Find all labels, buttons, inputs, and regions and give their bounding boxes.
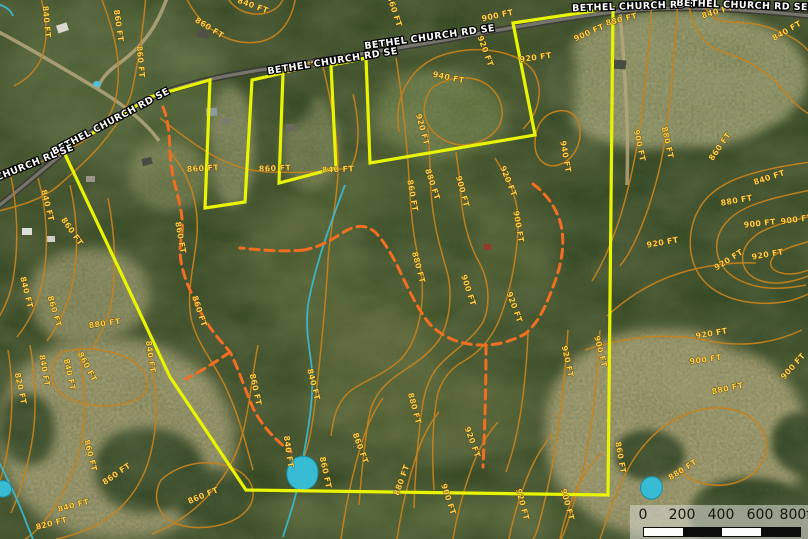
contour-elevation-label: 840 FT bbox=[37, 354, 51, 388]
scale-tick-label: 200 bbox=[669, 507, 696, 523]
contour-elevation-label: 920 FT bbox=[505, 290, 525, 324]
trail-path bbox=[240, 248, 304, 251]
contour-elevation-label: 900 FT bbox=[632, 129, 648, 163]
scale-bar-segment bbox=[722, 528, 761, 536]
contour-elevation-label: 900 FT bbox=[454, 175, 471, 209]
contour-elevation-label: 900 FT bbox=[689, 353, 722, 366]
contour-elevation-label: 900 FT bbox=[481, 8, 515, 24]
building bbox=[56, 22, 69, 33]
scale-tick-labels: 0200400600800ft bbox=[630, 507, 808, 523]
contour-elevation-label: 840 FT bbox=[305, 368, 322, 402]
aerial-topo-map[interactable]: 840 FT860 FT860 FT860 FT840 FT860 FT860 … bbox=[0, 0, 808, 539]
contour-elevation-label: 920 FT bbox=[498, 164, 519, 197]
contour-elevation-label: 840 FT bbox=[57, 497, 91, 514]
contour-elevation-label: 920 FT bbox=[751, 247, 785, 261]
building bbox=[222, 118, 230, 124]
scale-bar-segment bbox=[683, 528, 722, 536]
contour-elevation-label: 880 FT bbox=[410, 251, 427, 285]
contour-elevation-label: 900 FT bbox=[592, 335, 609, 369]
contour-labels-layer: 840 FT860 FT860 FT860 FT840 FT860 FT860 … bbox=[13, 0, 808, 532]
contour-elevation-label: 920 FT bbox=[646, 235, 680, 249]
contour-elevation-label: 860 FT bbox=[82, 439, 99, 473]
trail-path bbox=[163, 107, 291, 452]
map-overlay: 840 FT860 FT860 FT860 FT840 FT860 FT860 … bbox=[0, 0, 808, 539]
pond bbox=[641, 477, 663, 500]
contour-elevation-label: 940 FT bbox=[558, 140, 572, 174]
dirt-roads bbox=[0, 0, 627, 185]
contour-elevation-label: 860 FT bbox=[46, 295, 64, 329]
contour-elevation-label: 820 FT bbox=[35, 515, 69, 532]
scale-tick-label: 400 bbox=[708, 507, 735, 523]
dirt-road bbox=[98, 0, 168, 88]
contour-elevation-label: 920 FT bbox=[463, 425, 483, 459]
contour-elevation-label: 920 FT bbox=[519, 51, 552, 64]
contour-elevation-label: 880 FT bbox=[720, 193, 754, 207]
contour-elevation-label: 880 FT bbox=[423, 168, 442, 202]
contour-lines bbox=[0, 0, 808, 539]
property-boundary bbox=[63, 8, 613, 495]
contour-elevation-label: 860 FT bbox=[351, 431, 371, 465]
contour-elevation-label: 840 FT bbox=[39, 189, 56, 223]
contour-elevation-label: 860 FT bbox=[613, 441, 627, 475]
contour-elevation-label: 860 FT bbox=[385, 0, 404, 28]
contour-elevation-label: 820 FT bbox=[13, 372, 29, 406]
contour-elevation-label: 860 FT bbox=[707, 131, 733, 163]
contour-elevation-label: 860 FT bbox=[405, 179, 419, 213]
trail-path bbox=[483, 345, 486, 467]
contour-elevation-label: 880 FT bbox=[406, 392, 423, 426]
contour-elevation-label: 860 FT bbox=[173, 221, 187, 255]
contour-elevation-label: 860 FT bbox=[186, 485, 219, 506]
contour-elevation-label: 900 FT bbox=[459, 274, 478, 308]
contour-elevation-label: 840 FT bbox=[18, 276, 35, 310]
contour-elevation-label: 860 FT bbox=[135, 45, 147, 78]
contour-elevation-label: 920 FT bbox=[560, 345, 576, 379]
building bbox=[22, 228, 32, 235]
contour-elevation-label: 880 FT bbox=[667, 457, 699, 482]
contour-elevation-label: 900 FT bbox=[439, 483, 458, 517]
stream-path bbox=[0, 458, 33, 539]
scale-tick-label: 0 bbox=[639, 507, 648, 523]
stream-path bbox=[0, 4, 13, 16]
contour-elevation-label: 860 FT bbox=[101, 461, 133, 487]
contour-elevation-label: 860 FT bbox=[59, 216, 85, 248]
contour-elevation-label: 840 FT bbox=[753, 168, 787, 187]
scale-bar-track bbox=[643, 527, 801, 537]
scale-bar: 0200400600800ft bbox=[630, 505, 808, 539]
contour-elevation-label: 900 FT bbox=[511, 210, 525, 244]
building bbox=[286, 124, 295, 131]
contour-elevation-label: 880 FT bbox=[711, 381, 745, 397]
contour-elevation-label: 920 FT bbox=[695, 326, 729, 340]
dirt-road bbox=[620, 13, 627, 185]
contour-elevation-label: 840 FT bbox=[62, 358, 78, 392]
contour-elevation-label: 840 FT bbox=[282, 435, 295, 468]
contour-elevation-label: 900 FT bbox=[780, 213, 808, 226]
scale-bar-segment bbox=[644, 528, 683, 536]
swimming-pool bbox=[93, 81, 101, 87]
contour-elevation-label: 860 FT bbox=[76, 350, 99, 383]
contour-elevation-label: 860 FT bbox=[187, 163, 220, 174]
contour-elevation-label: 860 FT bbox=[318, 456, 334, 490]
contour-elevation-label: 880 FT bbox=[88, 317, 121, 330]
scale-bar-segment bbox=[761, 528, 800, 536]
scale-tick-label: 600 bbox=[747, 507, 774, 523]
contour-elevation-label: 900 FT bbox=[779, 351, 807, 381]
building bbox=[484, 244, 491, 250]
contour-elevation-label: 860 FT bbox=[259, 163, 292, 173]
building bbox=[141, 157, 152, 166]
building bbox=[86, 176, 95, 182]
trail-path bbox=[304, 184, 563, 345]
contour-elevation-label: 900 FT bbox=[572, 22, 605, 43]
scale-tick-label: 800ft bbox=[780, 507, 808, 523]
road-name-label: HEL CHURCH RL SE bbox=[0, 142, 75, 193]
contour-elevation-label: 940 FT bbox=[432, 70, 466, 86]
contour-elevation-label: 840 FT bbox=[322, 164, 355, 174]
contour-elevation-label: 840 FT bbox=[41, 5, 53, 38]
